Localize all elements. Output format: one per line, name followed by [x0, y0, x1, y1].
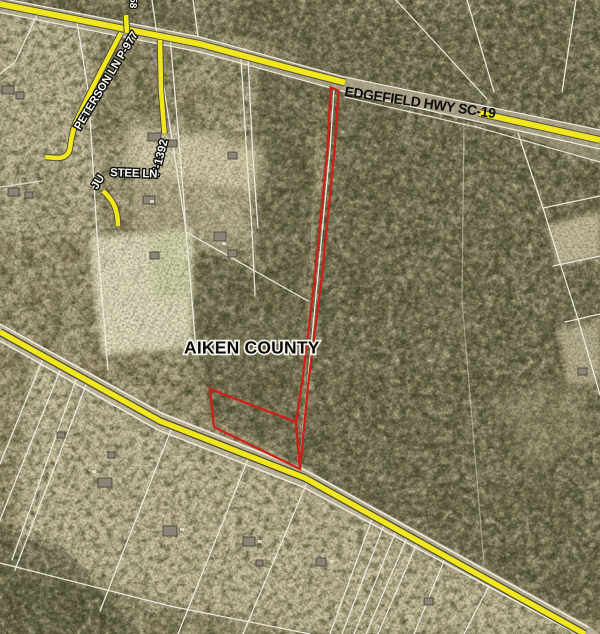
- svg-text:AIKEN COUNTY: AIKEN COUNTY: [184, 338, 320, 358]
- svg-text:58: 58: [127, 0, 139, 9]
- svg-text:STEE LN: STEE LN: [110, 167, 158, 181]
